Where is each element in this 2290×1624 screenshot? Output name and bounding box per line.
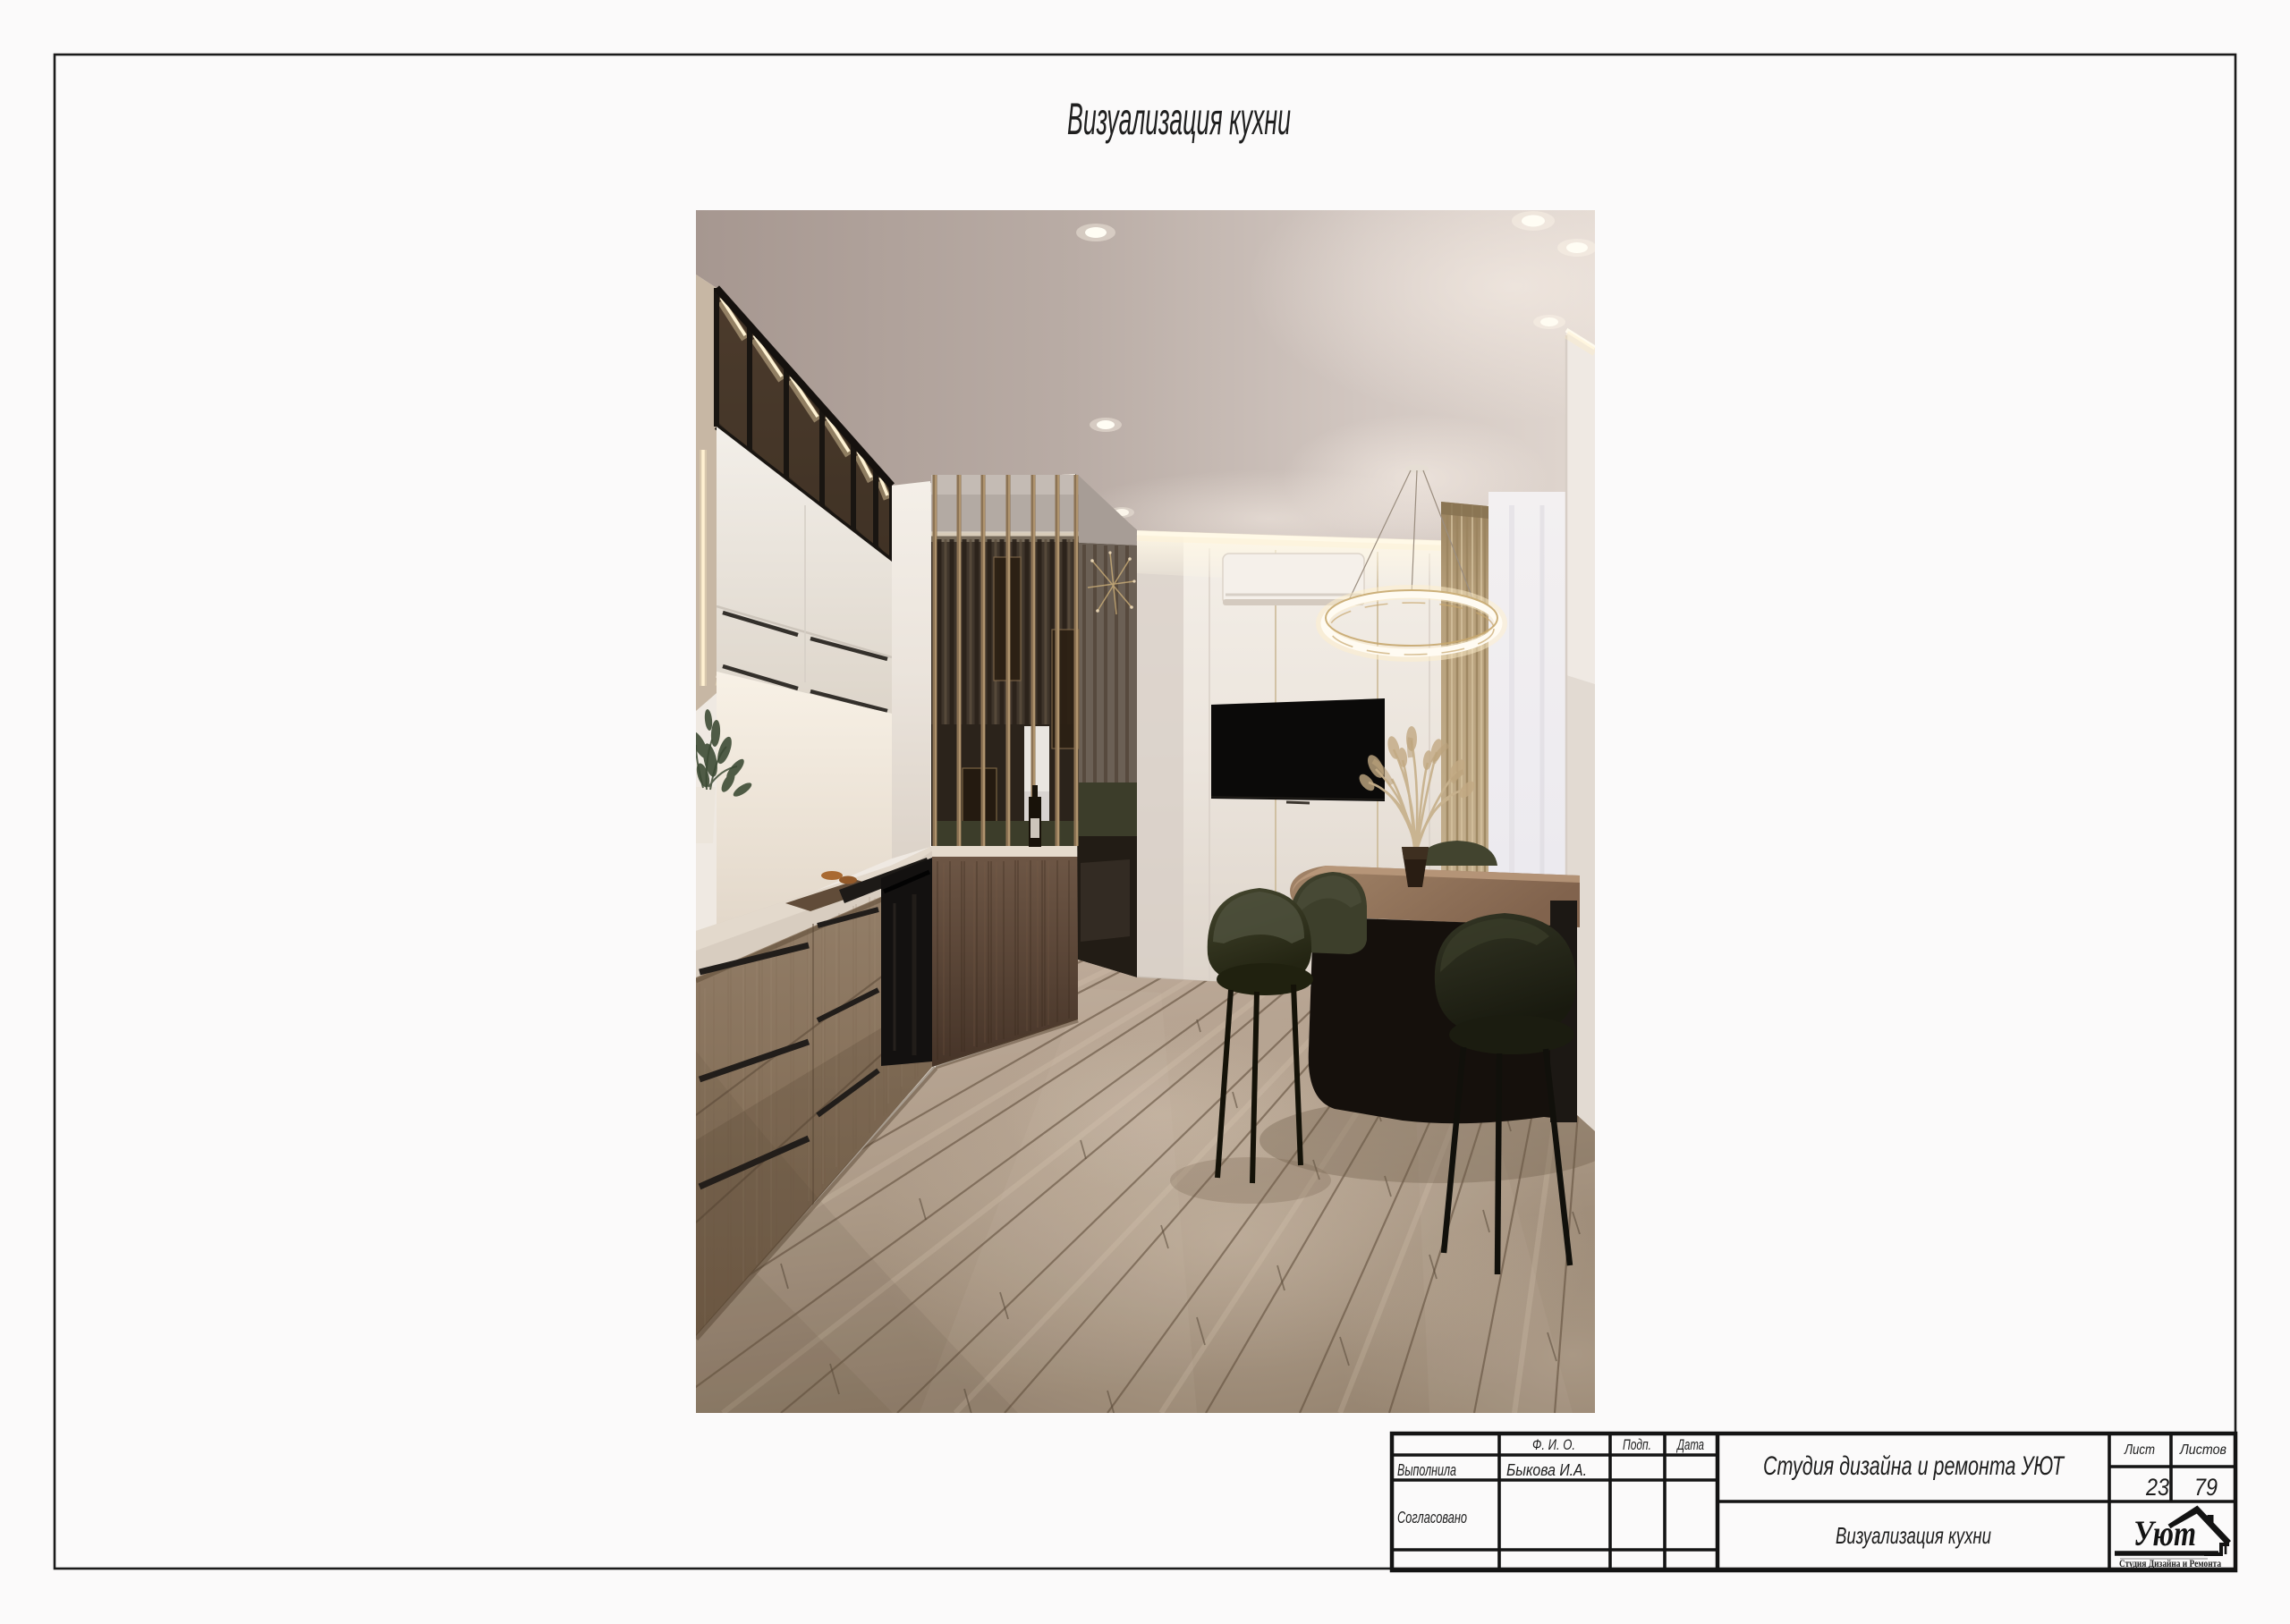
- svg-text:Быкова И.А.: Быкова И.А.: [1506, 1461, 1587, 1479]
- svg-text:79: 79: [2194, 1474, 2218, 1501]
- svg-text:Студия дизайна и ремонта УЮТ: Студия дизайна и ремонта УЮТ: [1763, 1451, 2065, 1481]
- svg-text:Визуализация кухни: Визуализация кухни: [1836, 1522, 1991, 1549]
- svg-text:Подп.: Подп.: [1623, 1436, 1651, 1453]
- svg-text:Выполнила: Выполнила: [1397, 1461, 1456, 1479]
- svg-text:Листов: Листов: [2179, 1442, 2226, 1458]
- svg-text:Визуализация кухни: Визуализация кухни: [1067, 94, 1291, 144]
- svg-text:Студия Дизайна и Ремонта: Студия Дизайна и Ремонта: [2119, 1559, 2221, 1569]
- svg-text:23: 23: [2145, 1474, 2169, 1501]
- svg-text:Ф. И. О.: Ф. И. О.: [1532, 1436, 1575, 1453]
- svg-text:Дата: Дата: [1676, 1436, 1704, 1453]
- svg-text:Согласовано: Согласовано: [1397, 1509, 1467, 1527]
- svg-text:Лист: Лист: [2124, 1442, 2155, 1458]
